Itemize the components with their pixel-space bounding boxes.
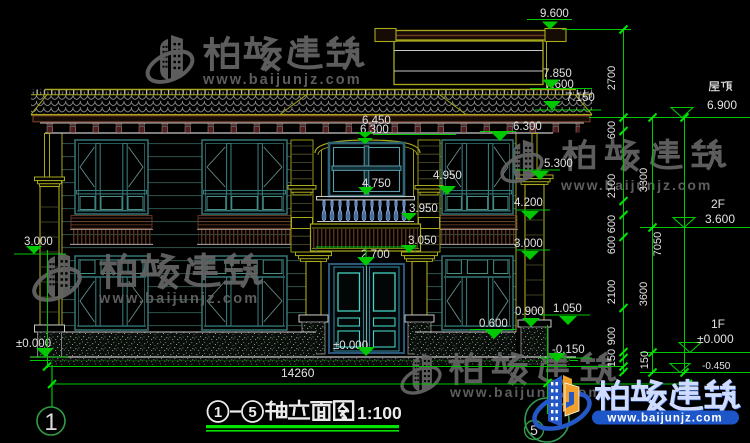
svg-text:150: 150 <box>639 351 651 369</box>
svg-text:7050: 7050 <box>652 232 664 256</box>
svg-text:0.600: 0.600 <box>479 318 508 330</box>
svg-text:1: 1 <box>44 409 57 436</box>
svg-text:5: 5 <box>248 404 256 421</box>
svg-text:3.600: 3.600 <box>705 212 735 226</box>
svg-text:3600: 3600 <box>638 282 650 306</box>
svg-text:7.150: 7.150 <box>566 92 595 104</box>
svg-text:1: 1 <box>214 404 222 421</box>
svg-text:600: 600 <box>606 121 618 139</box>
svg-text:1.050: 1.050 <box>553 303 582 315</box>
svg-text:2100: 2100 <box>606 280 618 304</box>
svg-text:3.000: 3.000 <box>24 236 53 248</box>
svg-text:2700: 2700 <box>606 66 618 90</box>
svg-text:-0.450: -0.450 <box>702 361 731 372</box>
svg-text:150: 150 <box>606 349 618 367</box>
svg-text:900: 900 <box>606 327 618 345</box>
svg-text:www.baijunjz.com: www.baijunjz.com <box>560 177 712 193</box>
svg-text:6.900: 6.900 <box>707 98 737 112</box>
svg-text:6.300: 6.300 <box>513 121 542 133</box>
svg-text:www.baijunjz.com: www.baijunjz.com <box>606 413 722 425</box>
svg-text:1F: 1F <box>711 317 725 331</box>
svg-text:3.000: 3.000 <box>514 238 543 250</box>
svg-text:9.600: 9.600 <box>540 8 569 20</box>
svg-text:600: 600 <box>606 215 618 233</box>
svg-text:4.200: 4.200 <box>514 197 543 209</box>
svg-text:3300: 3300 <box>638 168 650 192</box>
svg-text:1:100: 1:100 <box>357 403 402 423</box>
svg-text:2F: 2F <box>711 197 725 211</box>
svg-text:www.baijunjz.com: www.baijunjz.com <box>202 72 362 88</box>
svg-text:±0.000: ±0.000 <box>697 332 734 346</box>
svg-text:5.300: 5.300 <box>544 158 573 170</box>
svg-text:4.950: 4.950 <box>433 170 462 182</box>
svg-text:±0.000: ±0.000 <box>16 338 51 350</box>
svg-text:www.baijunjz.com: www.baijunjz.com <box>98 291 259 307</box>
svg-text:0.900: 0.900 <box>515 306 544 318</box>
svg-text:600: 600 <box>606 236 618 254</box>
svg-text:2100: 2100 <box>606 174 618 198</box>
svg-text:14260: 14260 <box>281 366 315 380</box>
